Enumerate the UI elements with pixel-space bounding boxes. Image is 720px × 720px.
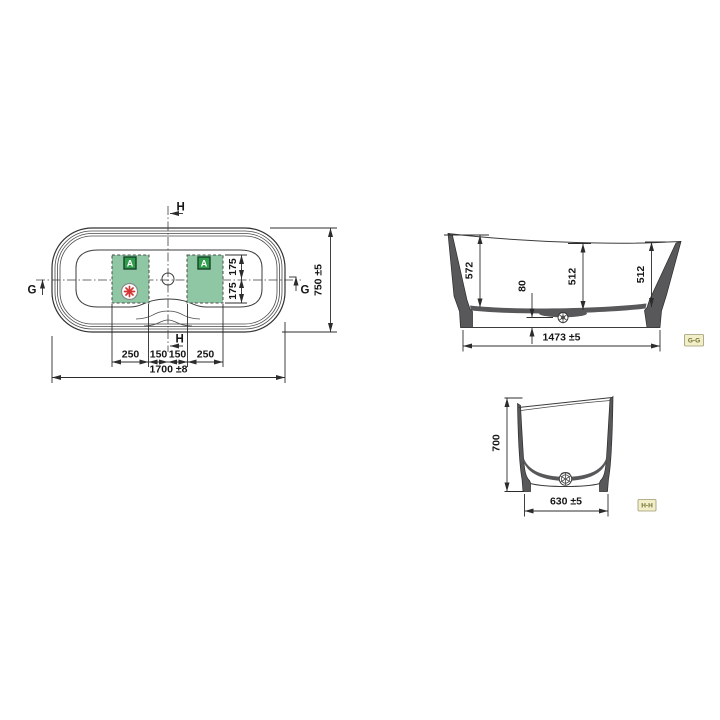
dim-750-label: 750 ±5 — [313, 264, 325, 296]
dim-512-right-label: 512 — [635, 266, 647, 284]
install-area-right: A — [187, 255, 223, 303]
dim-630-label: 630 ±5 — [550, 496, 582, 508]
gg-left-wall — [448, 234, 473, 328]
section-marker-g-right: G — [289, 277, 310, 297]
marker-g-label: G — [28, 285, 37, 297]
section-gg-view: 572 512 512 80 1473 ±5 G-G — [444, 234, 704, 352]
technical-drawing: A A 175 175 — [0, 0, 720, 720]
dim-250-right: 250 — [197, 349, 215, 361]
section-marker-h-bottom: H — [170, 334, 184, 347]
dim-1473-label: 1473 ±5 — [543, 332, 581, 344]
area-badge-label: A — [127, 259, 134, 269]
marker-h-label: H — [177, 202, 185, 214]
top-view: A A 175 175 — [28, 202, 338, 384]
dim-175-top: 175 — [227, 258, 239, 276]
install-area-left: A — [112, 255, 149, 303]
dim-250-left: 250 — [122, 349, 140, 361]
section-marker-g-left: G — [28, 280, 43, 297]
hh-left-wall — [518, 404, 531, 492]
dim-572-label: 572 — [464, 262, 476, 280]
area-badge-label: A — [201, 259, 208, 269]
hh-section-tag: H-H — [638, 500, 656, 512]
gg-dim-1473: 1473 ±5 — [463, 330, 660, 352]
dim-700-label: 700 — [491, 434, 503, 452]
gg-dim-512-mid: 512 — [567, 244, 592, 311]
dim-1700-label: 1700 ±8 — [150, 364, 188, 376]
dim-80-label: 80 — [517, 280, 529, 292]
dim-horizontal-chain: 250 150 150 250 — [112, 304, 223, 367]
marker-h-label: H — [176, 334, 184, 346]
hh-right-wall — [600, 397, 614, 492]
gg-section-tag: G-G — [685, 335, 704, 347]
hh-dim-630: 630 ±5 — [525, 494, 609, 517]
dim-vertical-offsets: 175 175 — [225, 255, 247, 303]
section-marker-h-top: H — [170, 202, 185, 214]
hh-tag-label: H-H — [641, 503, 653, 510]
dim-150-right: 150 — [169, 349, 187, 361]
gg-right-wall — [645, 242, 682, 328]
marker-g-label: G — [301, 285, 310, 297]
gg-tag-label: G-G — [688, 338, 700, 345]
asterisk-icon — [122, 284, 138, 300]
dim-175-bottom: 175 — [227, 282, 239, 300]
section-hh-view: 700 630 ±5 H-H — [491, 397, 657, 517]
hh-drain-icon — [559, 472, 571, 485]
hh-rim-edge-far — [519, 398, 613, 408]
dim-150-left: 150 — [150, 349, 168, 361]
dim-512-mid-label: 512 — [567, 268, 579, 286]
